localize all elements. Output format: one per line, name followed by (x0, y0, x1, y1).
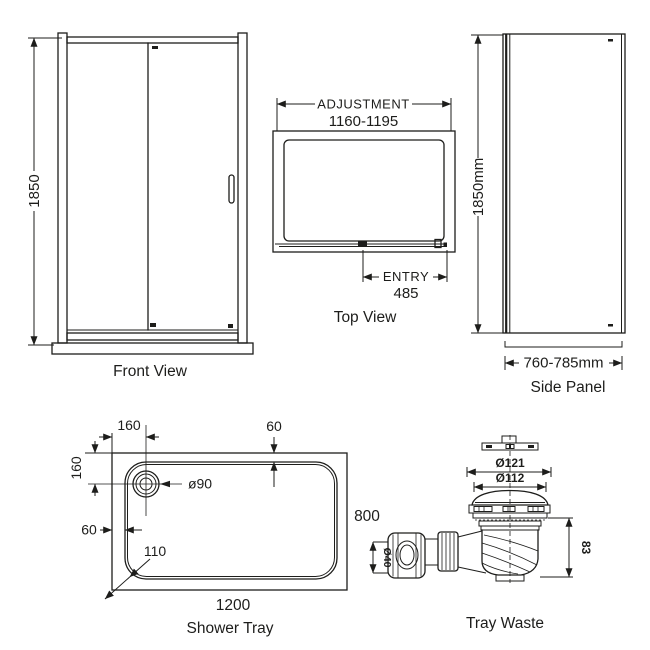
side-height-dimension: 1850mm (470, 35, 503, 333)
door-handle (229, 175, 234, 203)
waste-pipe-assembly (388, 531, 486, 578)
tray-waste-label: Tray Waste (466, 615, 544, 632)
flange-diameter-text: Ø121 (495, 456, 525, 470)
entry-width-text: 485 (393, 285, 418, 302)
front-height-dim-text: 1850 (26, 174, 43, 207)
side-height-dim-text: 1850mm (470, 158, 487, 216)
panel-bottom-rail (505, 341, 622, 347)
shower-tray-label: Shower Tray (186, 620, 273, 637)
tray-outline (112, 453, 347, 590)
tray-drain: ø90 (88, 425, 212, 516)
top-view-drawing: ADJUSTMENT 1160-1195 ENTRY 485 Top View (265, 85, 465, 330)
outlet-diameter-dimension: Ø40 (373, 542, 393, 573)
drain-arrowhead (160, 481, 170, 487)
diagram-canvas: 1850 Front View ADJUSTMENT 1160-1195 (0, 0, 650, 650)
door-roller-top (152, 46, 158, 49)
drain-offset-y-text: 160 (68, 456, 84, 480)
side-panel-drawing: 1850mm 760-785mm Side Panel (465, 20, 645, 398)
front-tray-base (52, 343, 253, 354)
tray-width-text: 1200 (216, 597, 251, 614)
front-view-drawing: 1850 Front View (20, 25, 260, 380)
top-view-label: Top View (334, 309, 397, 326)
panel-fixing-mark-top (608, 39, 613, 42)
drain-offset-x-dimension: 160 (99, 417, 159, 453)
door-roller-bottom (150, 323, 156, 327)
shower-tray-drawing: ø90 160 160 60 60 110 1200 (70, 415, 390, 645)
entry-dimension: ENTRY 485 (363, 250, 447, 302)
outlet-diameter-text: Ø40 (381, 548, 393, 568)
adjustment-range-text: 1160-1195 (329, 113, 399, 130)
drain-offset-y-dimension: 160 (68, 441, 112, 496)
body-height-dimension: 83 (540, 518, 593, 577)
tray-waste-drawing: Ø121 Ø112 (368, 415, 613, 640)
adjustment-dimension: ADJUSTMENT 1160-1195 (277, 97, 451, 132)
rim-inset-left-text: 60 (81, 522, 97, 538)
cap-diameter-dimension: Ø112 (474, 471, 546, 492)
front-view-label: Front View (113, 363, 188, 380)
front-frame (52, 33, 253, 354)
door-roller-mark (358, 242, 367, 247)
side-panel-label: Side Panel (531, 379, 606, 396)
drain-diameter-text: ø90 (188, 476, 212, 492)
adjustment-label-text: ADJUSTMENT (317, 97, 409, 112)
side-width-dimension: 760-785mm (505, 355, 622, 372)
body-height-text: 83 (579, 541, 593, 555)
door-roller-bottom-right (228, 324, 233, 328)
side-panel-outline (503, 34, 625, 347)
cap-diameter-text: Ø112 (496, 471, 525, 485)
rim-inset-top-text: 60 (266, 418, 282, 434)
front-height-dimension: 1850 (26, 38, 62, 345)
corner-radius-text: 110 (144, 543, 167, 559)
panel-fixing-mark-bottom (608, 324, 613, 327)
entry-label-text: ENTRY (383, 269, 429, 284)
top-enclosure-outline (273, 131, 455, 252)
side-width-dim-text: 760-785mm (523, 355, 603, 372)
waste-body (469, 491, 550, 582)
drain-offset-x-text: 160 (117, 417, 141, 433)
